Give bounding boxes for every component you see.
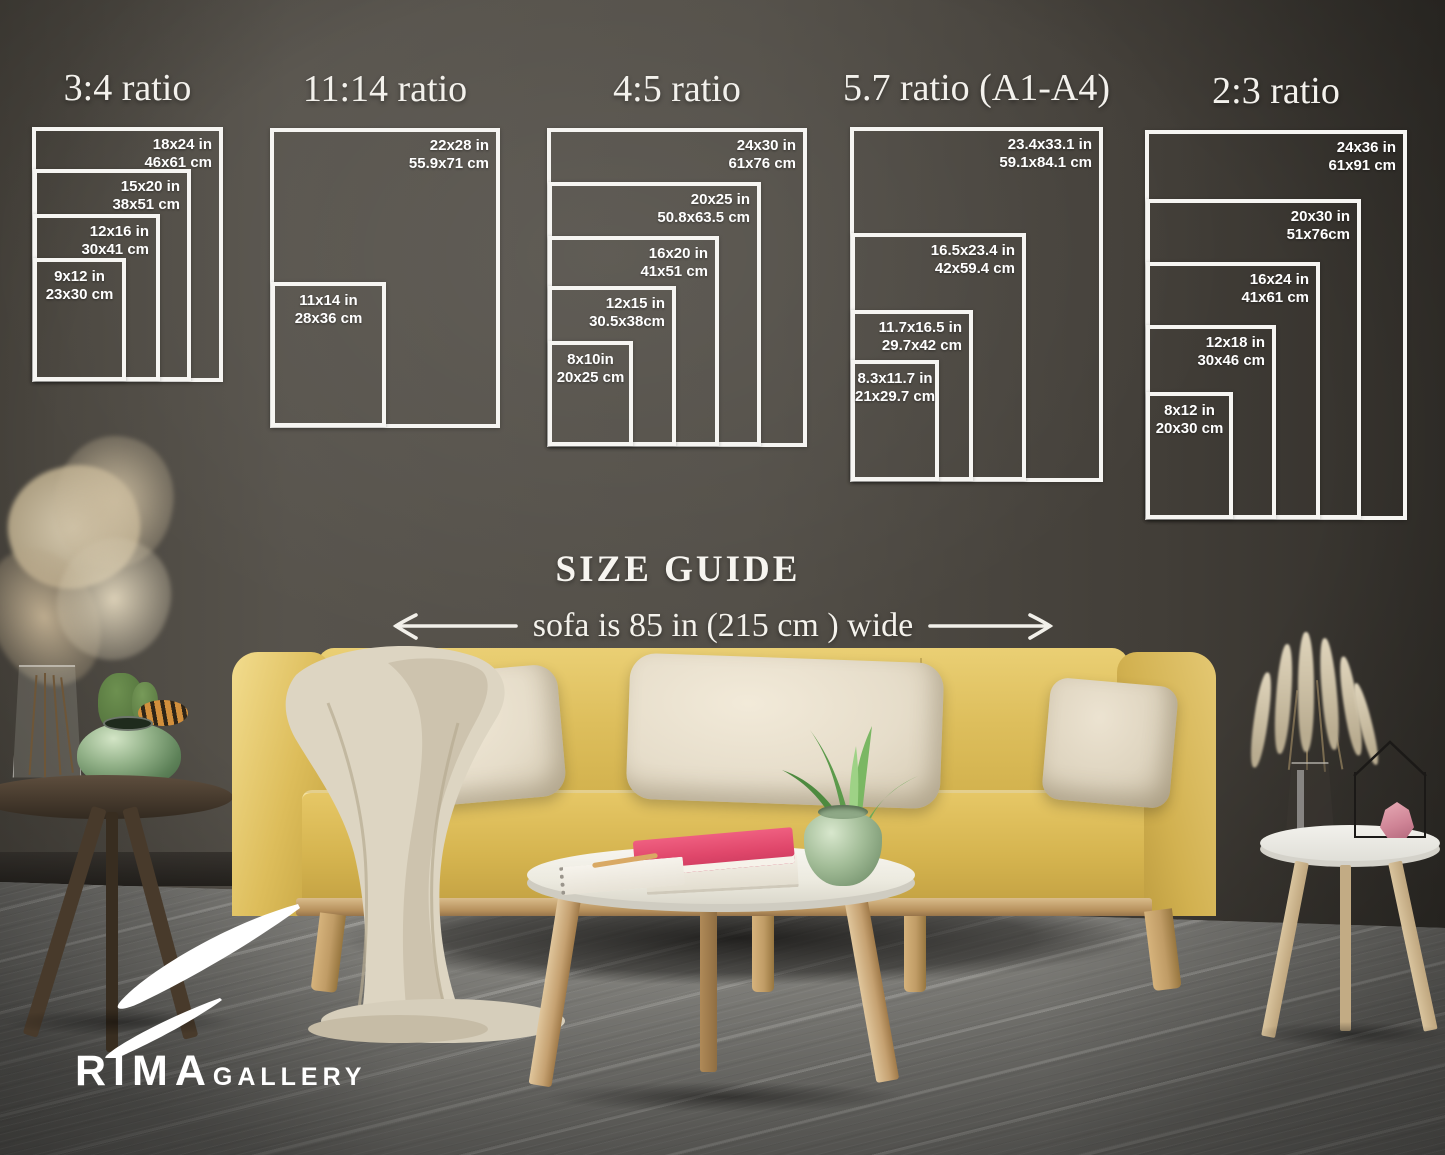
size-label: 16.5x23.4 in42x59.4 cm — [931, 242, 1015, 278]
size-frame: 8.3x11.7 in21x29.7 cm — [851, 360, 939, 481]
ratio-group: 2:3 ratio24x36 in61x91 cm20x30 in51x76cm… — [1145, 130, 1407, 520]
size-label: 8.3x11.7 in21x29.7 cm — [855, 370, 935, 406]
size-label: 16x20 in41x51 cm — [640, 245, 708, 281]
ratio-group: 5.7 ratio (A1-A4)23.4x33.1 in59.1x84.1 c… — [850, 127, 1103, 482]
size-label: 11.7x16.5 in29.7x42 cm — [879, 319, 962, 355]
size-label: 11x14 in28x36 cm — [275, 292, 382, 328]
logo-swoosh-icon — [70, 898, 350, 1058]
ratio-title: 4:5 ratio — [613, 66, 741, 114]
size-inches: 11x14 in — [275, 292, 382, 310]
size-label: 15x20 in38x51 cm — [112, 178, 180, 214]
poster-size-guide-scene: 3:4 ratio18x24 in46x61 cm15x20 in38x51 c… — [0, 0, 1445, 1155]
size-inches: 9x12 in — [37, 268, 122, 286]
size-label: 20x30 in51x76cm — [1287, 208, 1350, 244]
ratio-title: 2:3 ratio — [1212, 68, 1340, 116]
sofa-leg — [904, 916, 926, 992]
size-cm: 61x76 cm — [728, 155, 796, 173]
brand-logo: RIMAGALLERY — [70, 898, 400, 1103]
size-inches: 24x30 in — [728, 137, 796, 155]
coffee-table-leg — [700, 888, 717, 1072]
size-inches: 24x36 in — [1328, 139, 1396, 157]
logo-brand-text: RIMA — [75, 1050, 213, 1093]
sofa-leg — [752, 916, 774, 992]
size-cm: 30.5x38cm — [589, 313, 665, 331]
size-label: 23.4x33.1 in59.1x84.1 cm — [999, 136, 1092, 172]
sofa-leg — [1144, 908, 1182, 991]
size-cm: 29.7x42 cm — [879, 337, 962, 355]
size-cm: 59.1x84.1 cm — [999, 154, 1092, 172]
size-label: 18x24 in46x61 cm — [144, 136, 212, 172]
size-frame: 8x10in20x25 cm — [548, 341, 633, 446]
ratio-title: 3:4 ratio — [64, 65, 192, 113]
size-label: 16x24 in41x61 cm — [1241, 271, 1309, 307]
logo-suffix-text: GALLERY — [213, 1065, 367, 1090]
ratio-group: 3:4 ratio18x24 in46x61 cm15x20 in38x51 c… — [32, 127, 223, 382]
size-cm: 42x59.4 cm — [931, 260, 1015, 278]
size-label: 22x28 in55.9x71 cm — [409, 137, 489, 173]
size-label: 12x15 in30.5x38cm — [589, 295, 665, 331]
size-cm: 30x46 cm — [1197, 352, 1265, 370]
arrow-right-icon — [928, 608, 1054, 644]
size-cm: 51x76cm — [1287, 226, 1350, 244]
size-label: 24x30 in61x76 cm — [728, 137, 796, 173]
size-cm: 50.8x63.5 cm — [657, 209, 750, 227]
size-guide-heading: SIZE GUIDE — [478, 548, 878, 592]
size-inches: 8x10in — [552, 351, 629, 369]
size-inches: 20x30 in — [1287, 208, 1350, 226]
size-inches: 12x15 in — [589, 295, 665, 313]
dried-flower — [1247, 671, 1274, 768]
size-inches: 11.7x16.5 in — [879, 319, 962, 337]
size-inches: 8.3x11.7 in — [855, 370, 935, 388]
side-table-leg — [1388, 861, 1437, 1032]
size-label: 12x16 in30x41 cm — [81, 223, 149, 259]
size-cm: 28x36 cm — [275, 310, 382, 328]
size-cm: 21x29.7 cm — [855, 388, 935, 406]
size-inches: 20x25 in — [657, 191, 750, 209]
size-label: 12x18 in30x46 cm — [1197, 334, 1265, 370]
ratio-group: 11:14 ratio22x28 in55.9x71 cm11x14 in28x… — [270, 128, 500, 428]
size-cm: 41x51 cm — [640, 263, 708, 281]
size-label: 8x10in20x25 cm — [552, 351, 629, 387]
side-table-leg — [1261, 861, 1309, 1038]
cream-pillow — [1041, 677, 1179, 810]
size-inches: 16x20 in — [640, 245, 708, 263]
table-shadow — [1250, 1022, 1445, 1046]
size-label: 24x36 in61x91 cm — [1328, 139, 1396, 175]
size-cm: 20x25 cm — [552, 369, 629, 387]
size-frame: 9x12 in23x30 cm — [33, 258, 126, 381]
ratio-title: 11:14 ratio — [303, 66, 467, 114]
size-cm: 20x30 cm — [1150, 420, 1229, 438]
size-inches: 16.5x23.4 in — [931, 242, 1015, 260]
size-inches: 18x24 in — [144, 136, 212, 154]
size-frame: 11x14 in28x36 cm — [271, 282, 386, 427]
size-label: 8x12 in20x30 cm — [1150, 402, 1229, 438]
size-frame: 8x12 in20x30 cm — [1146, 392, 1233, 519]
size-inches: 12x18 in — [1197, 334, 1265, 352]
glass-vase — [12, 665, 82, 781]
size-inches: 12x16 in — [81, 223, 149, 241]
dried-flower — [1298, 632, 1314, 752]
size-cm: 23x30 cm — [37, 286, 122, 304]
size-inches: 16x24 in — [1241, 271, 1309, 289]
ratio-group: 4:5 ratio24x30 in61x76 cm20x25 in50.8x63… — [547, 128, 807, 447]
size-inches: 22x28 in — [409, 137, 489, 155]
size-label: 9x12 in23x30 cm — [37, 268, 122, 304]
size-inches: 23.4x33.1 in — [999, 136, 1092, 154]
ratio-title: 5.7 ratio (A1-A4) — [843, 65, 1110, 113]
right-side-table — [1240, 630, 1445, 1050]
size-cm: 30x41 cm — [81, 241, 149, 259]
side-table-leg — [1340, 865, 1351, 1031]
size-label: 20x25 in50.8x63.5 cm — [657, 191, 750, 227]
size-cm: 55.9x71 cm — [409, 155, 489, 173]
size-cm: 61x91 cm — [1328, 157, 1396, 175]
size-cm: 38x51 cm — [112, 196, 180, 214]
size-cm: 41x61 cm — [1241, 289, 1309, 307]
size-inches: 15x20 in — [112, 178, 180, 196]
size-inches: 8x12 in — [1150, 402, 1229, 420]
